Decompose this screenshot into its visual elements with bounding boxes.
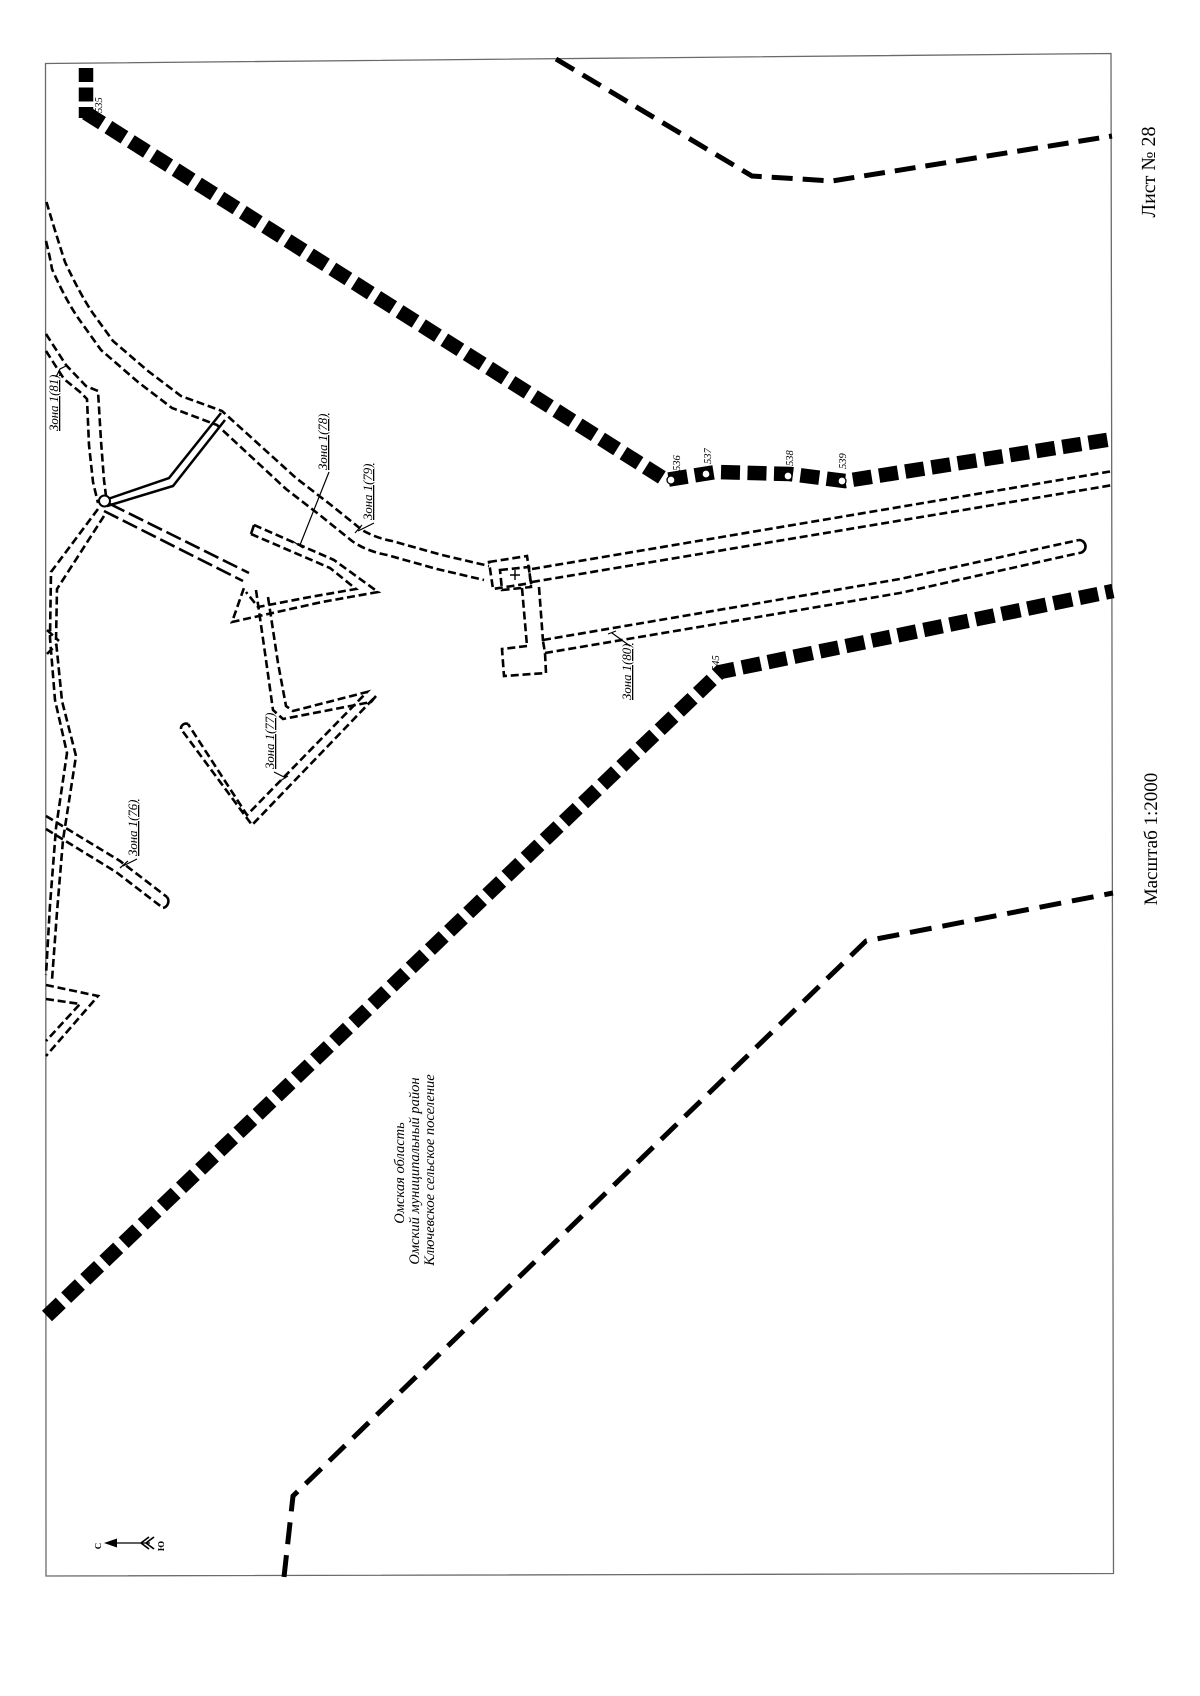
svg-text:539: 539 — [838, 453, 849, 470]
svg-text:Зона 1(81): Зона 1(81) — [47, 375, 61, 431]
svg-text:Масштаб 1:2000: Масштаб 1:2000 — [1141, 773, 1162, 906]
svg-text:Ю: Ю — [156, 1541, 166, 1551]
svg-text:535: 535 — [94, 97, 105, 113]
svg-text:Зона 1(78): Зона 1(78) — [316, 414, 330, 470]
svg-text:Лист № 28: Лист № 28 — [1138, 127, 1160, 218]
svg-text:Омская область: Омская область — [392, 1122, 408, 1224]
svg-text:537: 537 — [703, 448, 714, 465]
svg-text:538: 538 — [785, 450, 796, 467]
svg-text:С: С — [93, 1543, 103, 1550]
svg-text:Зона 1(76): Зона 1(76) — [126, 800, 140, 856]
svg-text:Зона 1(77): Зона 1(77) — [263, 713, 277, 769]
svg-text:545: 545 — [711, 655, 722, 671]
svg-text:Зона 1(79): Зона 1(79) — [361, 464, 375, 520]
svg-text:Зона 1(80): Зона 1(80) — [620, 644, 634, 700]
svg-text:536: 536 — [672, 455, 683, 472]
svg-text:Омский муниципальный район: Омский муниципальный район — [407, 1077, 423, 1264]
svg-text:Ключевское сельское поселение: Ключевское сельское поселение — [422, 1074, 438, 1267]
